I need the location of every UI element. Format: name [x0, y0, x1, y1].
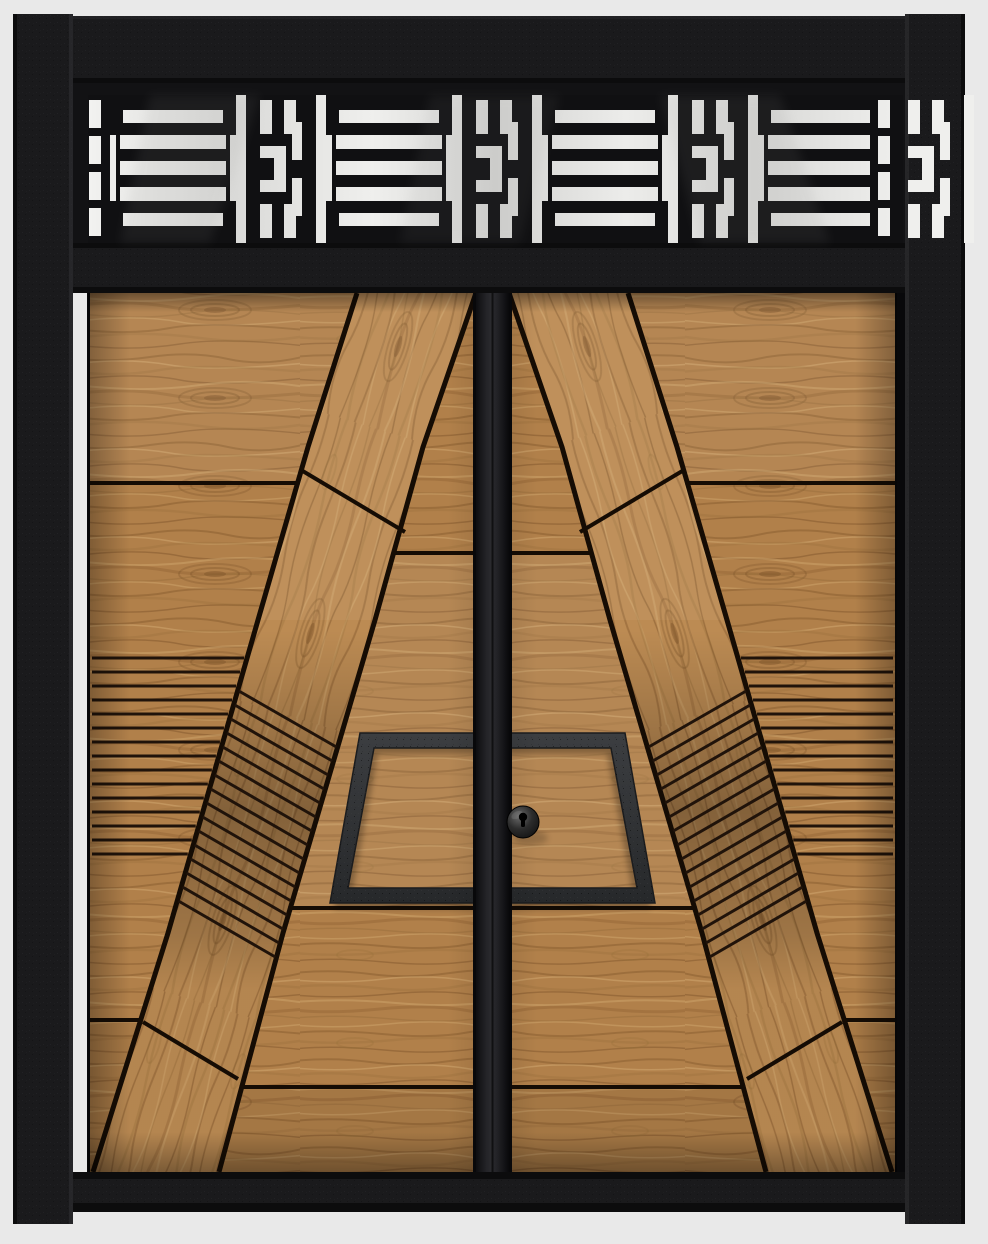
glass-opening — [284, 204, 302, 216]
glass-opening — [284, 122, 302, 134]
glass-opening — [932, 204, 950, 216]
glass-opening — [326, 135, 332, 201]
glass-slot — [964, 95, 974, 243]
glass-opening — [940, 134, 950, 160]
glass-opening — [555, 213, 655, 226]
glass-opening — [552, 135, 658, 149]
glass-opening — [110, 135, 116, 201]
glass-opening — [940, 178, 950, 204]
center-meeting-stile — [473, 293, 512, 1172]
glass-opening — [908, 204, 920, 238]
glass-opening — [274, 152, 286, 180]
glass-opening — [284, 216, 296, 238]
glass-opening — [260, 100, 272, 134]
glass-opening — [552, 161, 658, 175]
glass-opening — [932, 100, 944, 122]
glass-dash — [878, 208, 890, 236]
left-door-leaf — [85, 293, 518, 1172]
glass-opening — [260, 180, 286, 192]
glass-opening — [932, 216, 944, 238]
glass-opening — [552, 187, 658, 201]
glass-dash — [878, 172, 890, 200]
glass-dash — [89, 172, 101, 200]
glass-opening — [292, 178, 302, 204]
glass-opening — [932, 122, 950, 134]
glass-opening — [284, 100, 296, 122]
right-door-leaf — [467, 293, 900, 1172]
door-product-render — [0, 0, 988, 1244]
glass-opening — [908, 180, 934, 192]
glass-dash — [89, 208, 101, 236]
glass-opening — [922, 152, 934, 180]
glass-dash — [89, 100, 101, 128]
glass-opening — [555, 110, 655, 123]
glass-opening — [292, 134, 302, 160]
entry-door-scene — [0, 0, 988, 1244]
glass-dash — [89, 136, 101, 164]
glass-opening — [908, 100, 920, 134]
glass-dash — [878, 136, 890, 164]
glass-slot — [316, 95, 326, 243]
glass-opening — [339, 110, 439, 123]
glass-opening — [260, 204, 272, 238]
double-door — [85, 293, 905, 1172]
transom-fretwork-grille — [88, 95, 974, 243]
glass-opening — [662, 135, 668, 201]
glass-dash — [878, 100, 890, 128]
